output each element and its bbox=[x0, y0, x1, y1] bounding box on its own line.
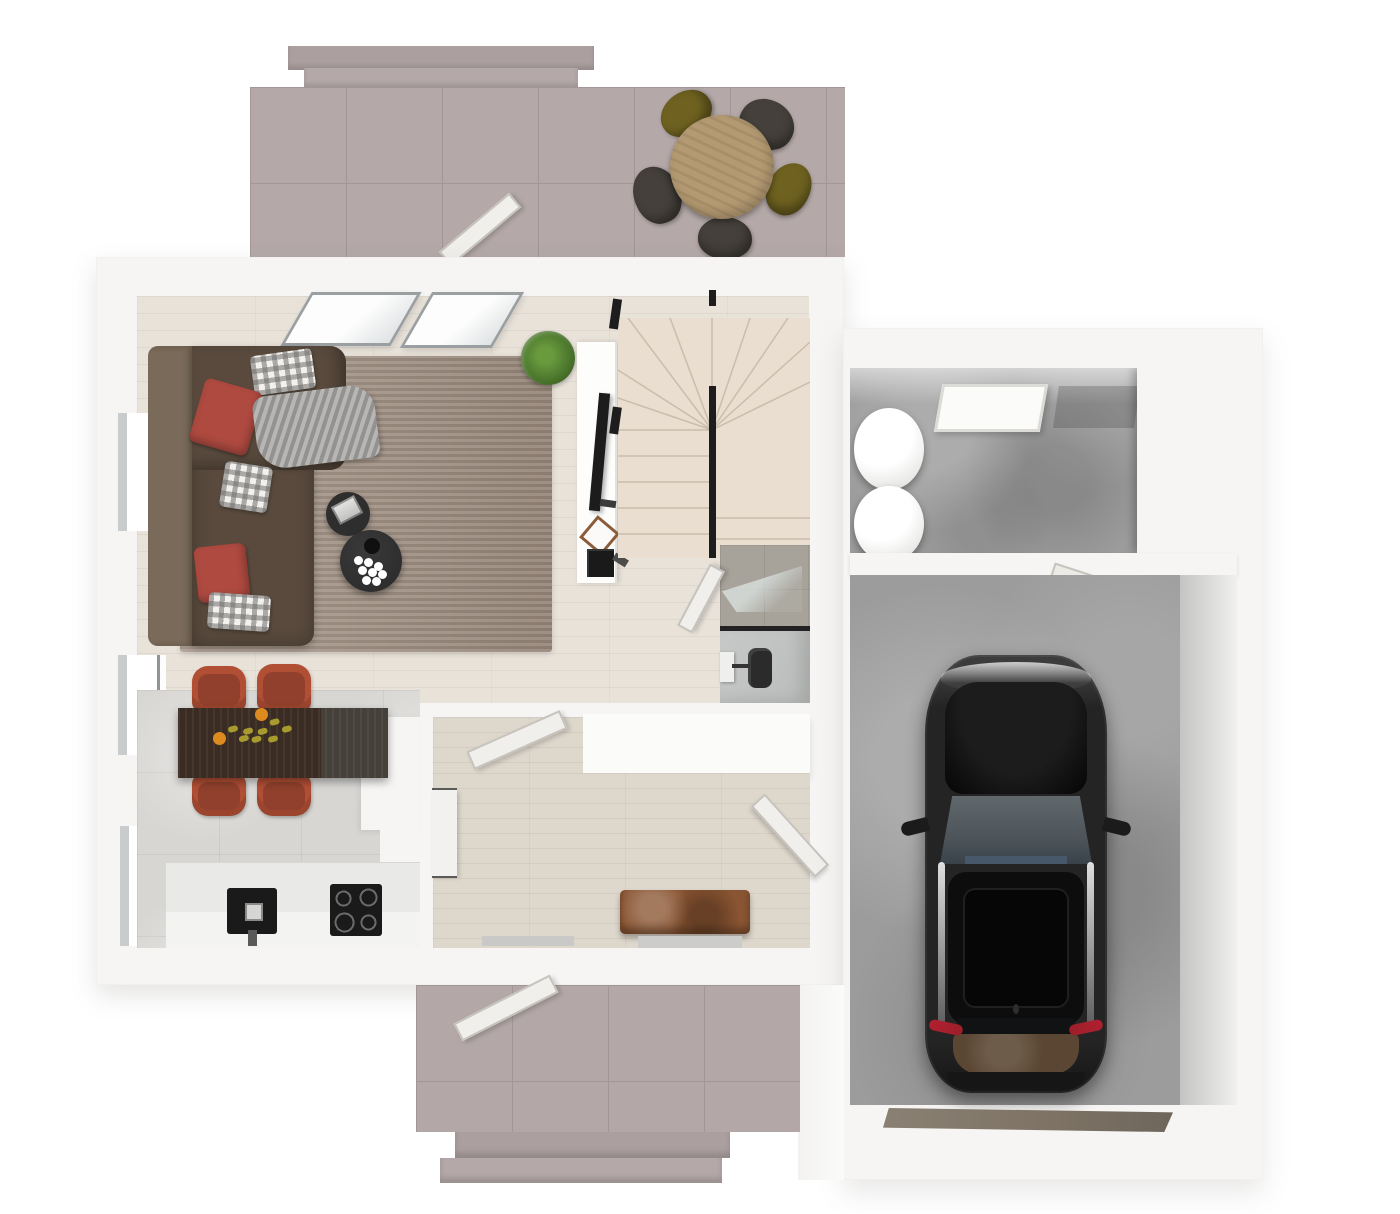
white-flowers bbox=[354, 556, 363, 565]
hall-side-cabinet bbox=[432, 790, 457, 876]
media-box bbox=[587, 549, 614, 577]
terrace-step-upper bbox=[288, 46, 594, 70]
sink-faucet-icon bbox=[248, 930, 257, 946]
potted-plant bbox=[521, 331, 575, 385]
porch-step-2 bbox=[440, 1158, 722, 1183]
car-rear-bumper bbox=[947, 1072, 1085, 1088]
car-trunk-mat bbox=[953, 1034, 1079, 1074]
checked-pillow-2 bbox=[219, 461, 274, 514]
dining-chair-1 bbox=[192, 666, 246, 712]
car-window-sill-right bbox=[1087, 862, 1094, 1030]
dining-table bbox=[178, 708, 388, 778]
checked-pillow-1 bbox=[250, 348, 317, 396]
checked-pillow-3 bbox=[207, 592, 271, 632]
skylight bbox=[934, 384, 1048, 432]
water-tank-1 bbox=[854, 408, 924, 490]
doormat-2 bbox=[638, 936, 742, 948]
stair-handrail-post-top bbox=[709, 290, 716, 306]
car-windshield bbox=[940, 796, 1092, 864]
doormat-1 bbox=[482, 936, 574, 946]
hall-wardrobe-cabinet bbox=[583, 714, 810, 773]
garage-divider-wall bbox=[850, 553, 1237, 575]
dining-chair-2 bbox=[257, 664, 311, 712]
porch-left-wall-sliver bbox=[798, 985, 844, 1180]
sink-basin-icon bbox=[245, 903, 263, 921]
sofa-backrest bbox=[148, 346, 196, 646]
water-tank-2 bbox=[854, 486, 924, 553]
car-antenna-fin bbox=[1013, 1004, 1019, 1014]
dining-chair-3 bbox=[192, 774, 246, 816]
porch-deck bbox=[416, 985, 800, 1132]
storage-dark-patch bbox=[1053, 386, 1137, 428]
orange-bloom-1 bbox=[213, 732, 226, 745]
flower-vase bbox=[364, 538, 380, 554]
leather-bench bbox=[620, 890, 750, 934]
stair-handrail bbox=[709, 386, 716, 558]
storage-room-floor bbox=[850, 368, 1137, 553]
cooktop bbox=[330, 884, 382, 936]
garage-floor-light-strip bbox=[1180, 575, 1237, 1105]
terrace-step-lower bbox=[304, 68, 578, 88]
throw-blanket bbox=[251, 383, 381, 471]
car-hood bbox=[945, 682, 1087, 794]
car-dashboard-strip bbox=[965, 856, 1067, 864]
car-window-sill-left bbox=[938, 862, 945, 1030]
toilet bbox=[748, 648, 772, 688]
orange-bloom-2 bbox=[255, 708, 268, 721]
porch-step-1 bbox=[455, 1132, 730, 1158]
floor-plan-canvas bbox=[0, 0, 1400, 1214]
toilet-pipe bbox=[732, 664, 750, 668]
dining-chair-4 bbox=[257, 774, 311, 816]
terrace-round-table bbox=[670, 115, 774, 219]
car-sunroof bbox=[963, 888, 1069, 1008]
